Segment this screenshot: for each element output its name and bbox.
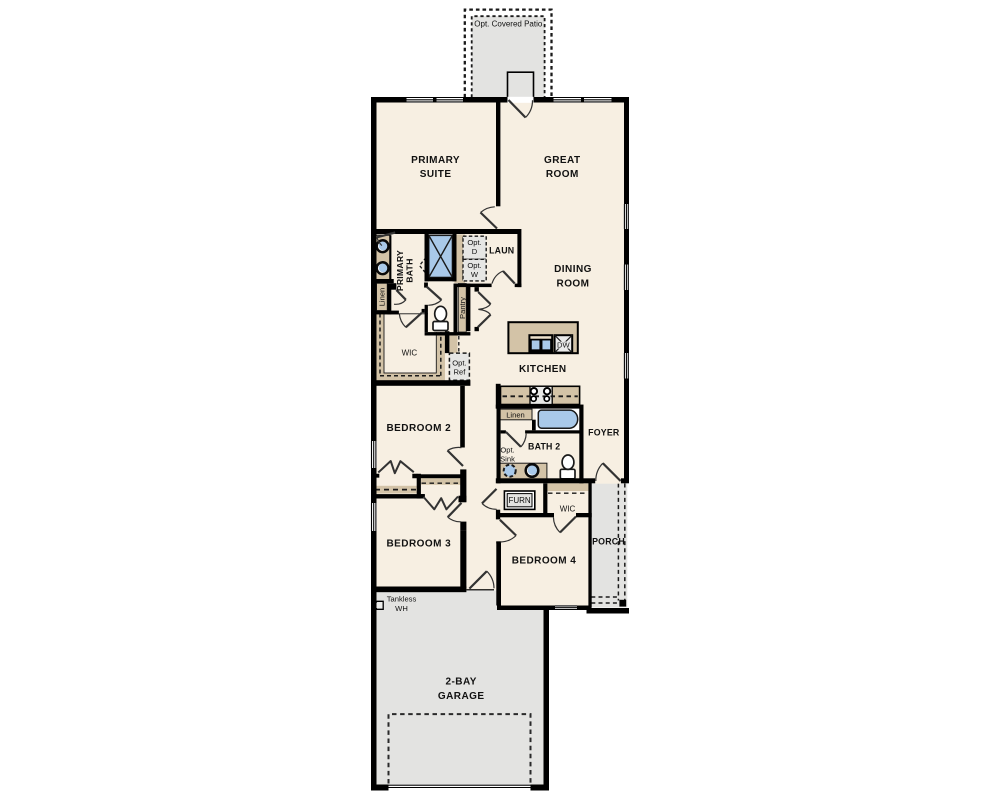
svg-text:WIC: WIC bbox=[560, 504, 576, 513]
svg-text:GREAT: GREAT bbox=[544, 155, 581, 166]
svg-text:BATH 2: BATH 2 bbox=[528, 442, 560, 452]
svg-text:Sink: Sink bbox=[500, 454, 515, 463]
svg-text:Opt.: Opt. bbox=[467, 261, 481, 270]
svg-text:Opt.: Opt. bbox=[500, 445, 514, 454]
svg-text:PORCH: PORCH bbox=[592, 537, 625, 547]
svg-text:LAUN: LAUN bbox=[489, 246, 514, 256]
svg-text:KITCHEN: KITCHEN bbox=[519, 364, 567, 375]
svg-text:Tankless: Tankless bbox=[387, 595, 417, 604]
svg-text:DW: DW bbox=[557, 341, 570, 350]
svg-text:FURN: FURN bbox=[508, 496, 530, 505]
svg-text:PRIMARY: PRIMARY bbox=[395, 250, 405, 291]
svg-text:BEDROOM 2: BEDROOM 2 bbox=[386, 423, 451, 434]
svg-text:ROOM: ROOM bbox=[557, 278, 590, 289]
svg-text:ROOM: ROOM bbox=[546, 169, 579, 180]
svg-text:Pantry: Pantry bbox=[458, 297, 467, 319]
svg-text:FOYER: FOYER bbox=[588, 428, 620, 438]
svg-text:PRIMARY: PRIMARY bbox=[411, 155, 460, 166]
svg-text:SUITE: SUITE bbox=[420, 169, 452, 180]
svg-text:BATH: BATH bbox=[405, 258, 415, 282]
svg-text:BEDROOM 4: BEDROOM 4 bbox=[512, 555, 577, 566]
svg-text:D: D bbox=[472, 247, 478, 256]
svg-text:BEDROOM 3: BEDROOM 3 bbox=[386, 538, 451, 549]
svg-text:Opt. Covered Patio: Opt. Covered Patio bbox=[474, 19, 543, 28]
svg-text:Opt.: Opt. bbox=[467, 238, 481, 247]
svg-text:W: W bbox=[471, 270, 479, 279]
svg-text:2-BAY: 2-BAY bbox=[446, 677, 477, 688]
svg-text:Ref: Ref bbox=[453, 367, 466, 376]
svg-text:Opt.: Opt. bbox=[452, 358, 466, 367]
svg-text:DINING: DINING bbox=[554, 264, 592, 275]
svg-text:Linen: Linen bbox=[378, 288, 387, 307]
svg-text:GARAGE: GARAGE bbox=[438, 691, 485, 702]
svg-text:Linen: Linen bbox=[506, 411, 525, 420]
svg-text:WIC: WIC bbox=[402, 349, 418, 358]
svg-text:WH: WH bbox=[395, 604, 408, 613]
